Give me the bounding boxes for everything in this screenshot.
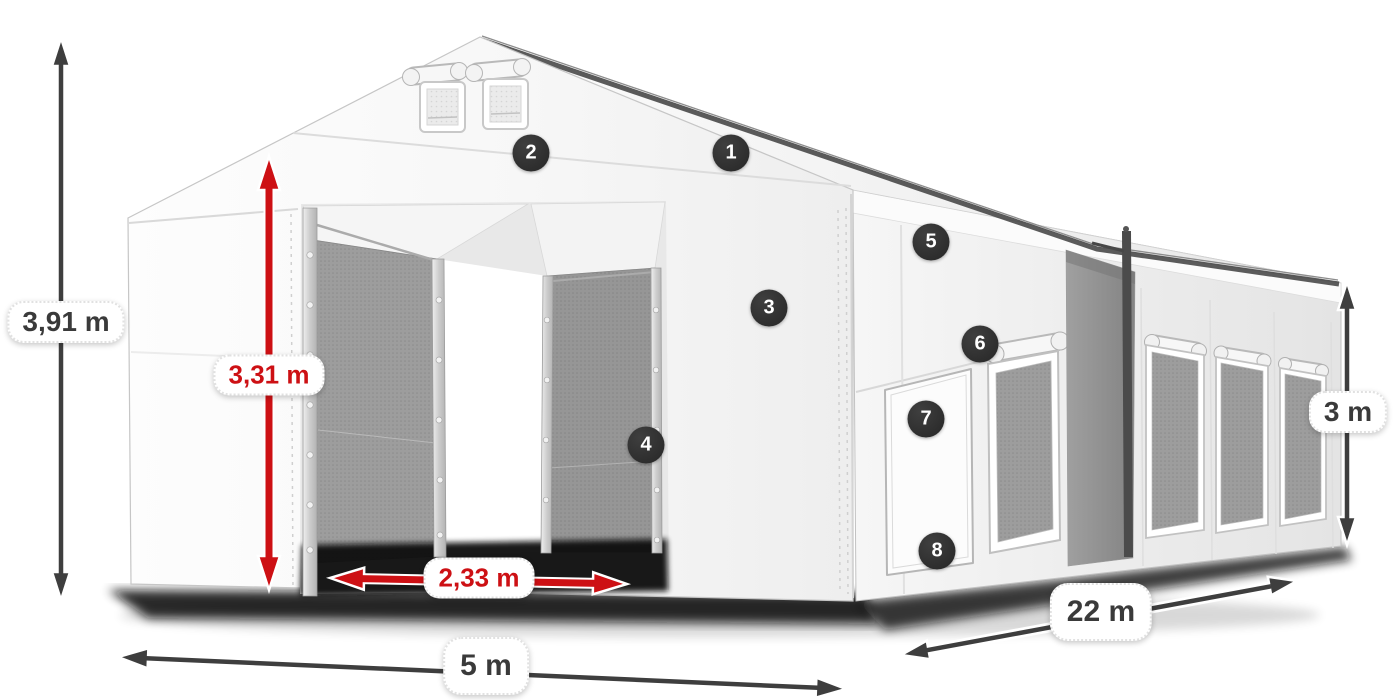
dimension-label-side-height: 3 m	[1309, 391, 1387, 433]
callout-marker-3: 3	[751, 290, 788, 327]
callout-marker-2: 2	[513, 135, 550, 172]
dimension-label-width: 5 m	[443, 637, 529, 695]
side-window-front	[986, 332, 1069, 553]
side-window-rear-1	[1145, 335, 1207, 539]
side-window-rear-3	[1279, 358, 1329, 527]
side-doorway-opening	[1066, 226, 1135, 566]
tent-illustration	[0, 0, 1400, 700]
interior-mesh-panel-right	[544, 268, 657, 552]
callout-marker-6: 6	[962, 326, 999, 363]
callout-marker-5: 5	[913, 224, 950, 261]
callout-marker-4: 4	[628, 427, 665, 464]
dimension-label-door-height: 3,31 m	[214, 355, 325, 396]
dimension-label-length: 22 m	[1050, 583, 1152, 641]
dimension-label-door-width: 2,33 m	[424, 558, 535, 599]
dimension-label-total-height: 3,91 m	[7, 301, 124, 343]
callout-marker-7: 7	[908, 401, 945, 438]
callout-marker-1: 1	[713, 135, 750, 172]
front-door-opening	[300, 201, 669, 596]
tent-dimension-diagram: 3,91 m 3,31 m 2,33 m 5 m 22 m 3 m 1 2 3 …	[0, 0, 1400, 700]
interior-mesh-panel-left	[311, 240, 440, 563]
callout-marker-8: 8	[919, 533, 956, 570]
side-window-rear-2	[1214, 346, 1271, 533]
